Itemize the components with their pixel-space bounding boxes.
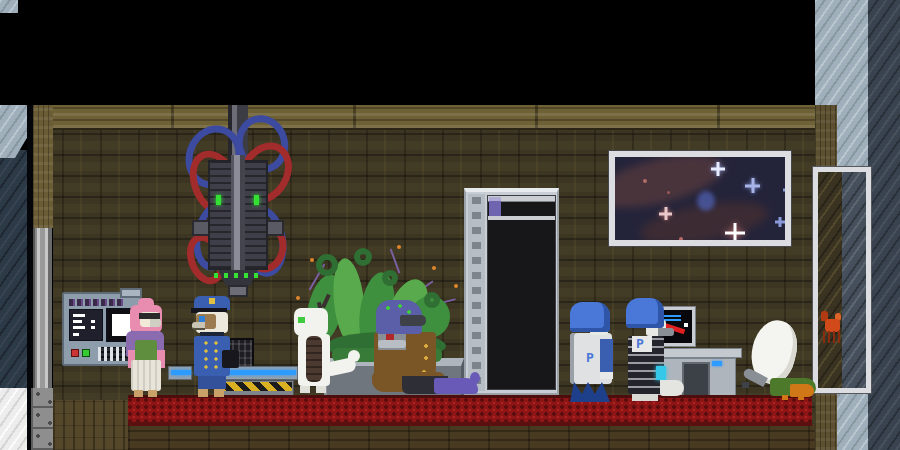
ceiling-void	[0, 0, 815, 105]
officer-satchel	[222, 350, 239, 368]
pink-avian-npc[interactable]	[126, 298, 178, 398]
staff-npc-1[interactable]: P	[568, 302, 620, 402]
left-white-block	[0, 388, 27, 450]
right-wood-column-bottom	[815, 392, 837, 450]
console-button-row[interactable]	[69, 299, 125, 306]
dragon-foot	[316, 386, 326, 393]
space-poster[interactable]	[608, 150, 792, 247]
star-icon	[775, 217, 785, 227]
readout-line	[73, 333, 79, 336]
white-dragon-npc[interactable]	[290, 294, 362, 398]
staff1-fin-legs	[570, 382, 610, 402]
right-dark-strip	[868, 0, 900, 450]
officer-foot	[198, 389, 208, 397]
star-icon	[783, 185, 785, 195]
red-carpet	[128, 395, 812, 426]
left-wood-column	[33, 105, 53, 228]
metal-pillar	[33, 228, 52, 388]
star-icon	[745, 178, 760, 193]
merchant-crossed-arms	[378, 340, 406, 348]
readout-dot	[91, 326, 95, 329]
readout-dot	[91, 320, 95, 323]
poster-sky	[615, 157, 785, 240]
console-readout-panel	[69, 309, 103, 341]
riveted-base-block	[31, 388, 53, 450]
pink-avian-skirt	[131, 360, 161, 391]
star-dot-icon	[667, 191, 670, 194]
staff-npc-2[interactable]: P	[620, 296, 686, 402]
merchant-boot-tip	[470, 372, 480, 384]
star-icon	[659, 207, 672, 220]
officer-pants	[198, 376, 226, 389]
officer-foot	[214, 389, 224, 397]
can-purple	[489, 197, 501, 216]
plant-curl-icon	[354, 248, 372, 266]
star-icon	[725, 223, 745, 240]
green-indicator-icon	[254, 195, 259, 205]
crab-legs	[823, 331, 843, 343]
window-glass-right	[842, 172, 866, 388]
staff2-feet	[632, 394, 658, 401]
right-wood-column-top	[815, 105, 837, 168]
plant-twig-tip	[397, 245, 401, 249]
star-dot-icon	[679, 237, 683, 240]
window-crab[interactable]	[821, 309, 849, 349]
plant-curl-icon	[316, 254, 338, 276]
star-dot-icon	[643, 179, 647, 183]
window-glass-left	[818, 172, 842, 388]
star-icon	[711, 162, 725, 176]
corner-metal-block	[0, 0, 18, 13]
staff2-snout	[658, 328, 674, 336]
readout-line	[73, 326, 85, 329]
dragon-tail-tip	[348, 350, 360, 362]
coated-merchant-npc[interactable]	[372, 298, 482, 398]
machine-shaft	[231, 155, 245, 280]
green-indicator-row	[214, 273, 262, 278]
staff2-apron-letter: P	[636, 337, 644, 350]
plant-twig-tip	[454, 284, 458, 288]
side-window	[812, 166, 872, 394]
machine-clamp	[266, 220, 284, 236]
coat-buttons	[204, 341, 218, 369]
police-avian-npc[interactable]	[186, 294, 244, 398]
staff1-cuff	[600, 372, 613, 379]
white-fowl[interactable]	[742, 320, 820, 400]
shelf-row	[488, 196, 555, 220]
staff1-blue-hair	[570, 302, 610, 332]
left-navy-block	[0, 150, 27, 388]
dragon-eye	[298, 317, 305, 323]
shelf-rows	[487, 195, 556, 390]
pink-avian-foot	[134, 390, 143, 397]
ceiling-machine[interactable]	[184, 105, 294, 300]
floor-front-planks	[128, 424, 815, 450]
dragon-antenna	[321, 294, 331, 308]
console-green-button[interactable]	[82, 349, 90, 357]
plant-twig-tip	[310, 258, 314, 262]
wall-top-beam	[53, 105, 815, 130]
staff2-tail	[660, 380, 684, 396]
fowl-foot	[798, 395, 804, 400]
console-notch	[120, 288, 142, 298]
plant-curl-icon	[382, 270, 398, 286]
desk-drawer-handle[interactable]	[712, 361, 722, 366]
plant-twig-tip	[432, 266, 436, 270]
blue-orb-icon	[697, 191, 715, 211]
staff1-apron-letter: P	[586, 351, 594, 364]
console-red-button[interactable]	[71, 349, 79, 357]
readout-line	[73, 320, 82, 323]
dragon-foot	[300, 386, 310, 393]
fowl-foot	[782, 395, 788, 400]
game-scene: P P	[0, 0, 900, 450]
cap-badge-icon	[209, 298, 215, 304]
merchant-snout	[400, 315, 426, 326]
fowl-beak	[742, 382, 749, 388]
pink-avian-foot	[148, 390, 157, 397]
officer-beak	[192, 322, 205, 330]
staff2-hip-device	[656, 366, 666, 380]
pink-avian-beak	[150, 319, 161, 327]
wall-lower-planks	[53, 400, 128, 450]
readout-line	[73, 314, 85, 317]
green-indicator-icon	[216, 195, 221, 205]
dragon-belly-scales	[306, 336, 322, 382]
staff2-blue-hair	[626, 298, 664, 328]
